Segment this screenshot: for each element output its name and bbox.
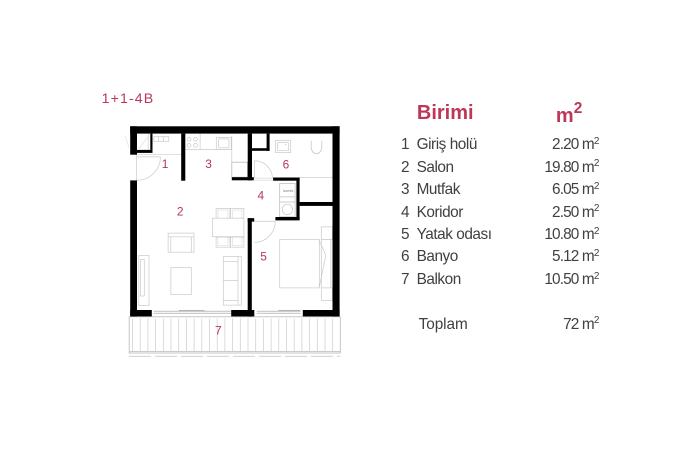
- svg-text:1: 1: [162, 157, 169, 171]
- svg-text:5: 5: [260, 249, 267, 263]
- svg-text:4: 4: [257, 189, 264, 203]
- svg-text:7: 7: [215, 324, 222, 338]
- svg-text:3: 3: [205, 157, 212, 171]
- svg-text:6: 6: [283, 158, 290, 172]
- svg-text:kombi: kombi: [283, 189, 293, 193]
- svg-text:2: 2: [177, 205, 184, 219]
